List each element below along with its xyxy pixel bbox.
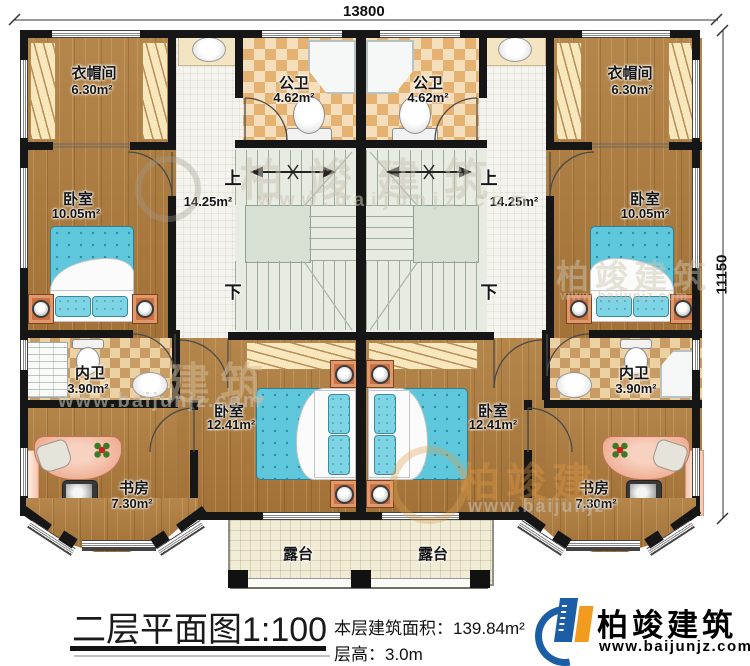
terrace-post [351, 570, 371, 588]
wall [669, 142, 702, 150]
wall [190, 400, 198, 410]
room-area-cloakroom-left: 6.30m² [71, 82, 112, 97]
title-underline-shadow [74, 655, 330, 657]
pillow [92, 296, 128, 317]
room-label-cloakroom-right: 衣帽间 [607, 62, 652, 83]
terrace-door [382, 512, 459, 520]
lamp-icon [335, 485, 354, 504]
wall [168, 196, 176, 338]
shower-icon [24, 342, 68, 398]
staircase-right [366, 148, 487, 332]
window [82, 540, 156, 551]
stair-flight-down [235, 261, 356, 330]
sink-icon [498, 37, 532, 62]
floor-area-line: 本层建筑面积：139.84m² [334, 614, 525, 639]
window [52, 30, 140, 38]
floor-height-value: 3.0m [385, 645, 423, 664]
stair-flight-up [235, 150, 356, 205]
floor-area-label: 本层建筑面积： [334, 619, 453, 638]
window [380, 30, 460, 38]
window [20, 448, 28, 496]
room-area-bedroom-large-left: 12.41m² [207, 417, 255, 432]
plant-icon [92, 440, 112, 460]
stair-landing [413, 205, 479, 263]
nightstand [132, 294, 158, 324]
wall [20, 330, 133, 338]
room-label-ensuite-right: 内卫 [619, 362, 649, 383]
window [566, 540, 640, 551]
lamp-icon [570, 300, 588, 318]
stairs-up-right: 上 [481, 164, 498, 189]
wall [130, 142, 176, 150]
brand-logo [535, 596, 593, 660]
pillow [374, 394, 396, 434]
room-area-ensuite-right: 3.90m² [615, 381, 656, 396]
window [582, 30, 670, 38]
pillow [328, 394, 350, 434]
lamp-icon [32, 300, 50, 318]
window [20, 340, 28, 370]
wall [542, 332, 546, 340]
stairs-down-left: 下 [225, 278, 242, 303]
wall [228, 332, 235, 340]
pillow [596, 296, 632, 317]
staircase-left [235, 148, 356, 332]
closet [556, 42, 582, 140]
room-label-cloakroom-left: 衣帽间 [71, 62, 116, 83]
nightstand [366, 360, 394, 388]
terrace-post [228, 570, 248, 588]
room-label-terrace-left: 露台 [283, 543, 313, 564]
room-area-bedroom-small-left: 10.05m² [52, 206, 100, 221]
floor-height-label: 层高： [334, 645, 385, 664]
lamp-icon [335, 365, 354, 384]
sink-icon [556, 372, 592, 398]
wall [20, 142, 53, 150]
terrace-door [263, 512, 340, 520]
wall [358, 140, 487, 148]
pillow [374, 435, 396, 475]
plant-icon [610, 440, 630, 460]
plan-title-text: 二层平面图 [72, 611, 242, 649]
room-label-study-right: 书房 [579, 477, 609, 498]
window [692, 60, 700, 138]
floor-area-value: 139.84m² [453, 619, 525, 638]
stair-winders [366, 205, 413, 261]
wall [20, 400, 178, 408]
lamp-icon [371, 485, 390, 504]
wall [172, 338, 180, 400]
lamp-icon [674, 300, 692, 318]
room-label-study-left: 书房 [119, 477, 149, 498]
stairs-area-right: 14.25m² [490, 194, 538, 209]
stair-landing [245, 205, 311, 263]
room-area-bedroom-small-right: 10.05m² [621, 206, 669, 221]
terrace-post [470, 570, 490, 588]
wall [196, 512, 524, 520]
logo-building-windows [558, 605, 567, 635]
nightstand [28, 294, 54, 324]
room-area-study-left: 7.30m² [111, 496, 152, 511]
sink-icon [132, 372, 168, 398]
wall [544, 400, 702, 408]
wall [235, 38, 243, 98]
stairs-area-left: 14.25m² [184, 194, 232, 209]
title-underline [70, 646, 326, 651]
wall [479, 38, 487, 98]
wall [589, 330, 702, 338]
sink-icon [192, 37, 226, 62]
pillow [633, 296, 669, 317]
wall [546, 38, 554, 150]
floor-height-line: 层高：3.0m [334, 640, 423, 665]
room-area-cloakroom-right: 6.30m² [611, 82, 652, 97]
window [20, 60, 28, 138]
pillow [55, 296, 91, 317]
closet [668, 42, 694, 140]
window [692, 340, 700, 370]
nightstand [330, 360, 358, 388]
plan-title: 二层平面图1:100 [72, 602, 327, 651]
room-area-study-right: 7.30m² [575, 496, 616, 511]
nightstand [366, 480, 394, 508]
room-label-terrace-right: 露台 [418, 543, 448, 564]
stair-flight-down [366, 261, 487, 330]
dimension-height: 11150 [714, 245, 731, 305]
wall [176, 332, 180, 340]
wall [546, 142, 592, 150]
wall [235, 140, 364, 148]
lamp-icon [136, 300, 154, 318]
stair-flight-up [366, 150, 487, 205]
stairs-down-right: 下 [481, 278, 498, 303]
closet [142, 42, 168, 140]
wall [168, 38, 176, 150]
room-area-bedroom-large-right: 12.41m² [469, 417, 517, 432]
wall [524, 400, 532, 410]
room-label-ensuite-left: 内卫 [75, 362, 105, 383]
window [20, 168, 28, 268]
window [692, 168, 700, 268]
closet [30, 42, 56, 140]
window [692, 448, 700, 496]
plan-scale: 1:100 [242, 611, 327, 649]
window [262, 30, 342, 38]
room-area-public-bath-left: 4.62m² [273, 90, 314, 105]
stair-winders [309, 205, 356, 261]
wall [546, 196, 554, 338]
brand-website: www.baijunjz.com [599, 638, 750, 655]
wall [235, 332, 487, 340]
lamp-icon [371, 365, 390, 384]
room-area-public-bath-right: 4.62m² [407, 90, 448, 105]
nightstand [566, 294, 592, 324]
wall-party [356, 38, 366, 512]
wall [487, 332, 494, 340]
wall [542, 338, 550, 400]
floor-plan-page: 13800 11150 衣帽间 6.30m² 衣帽间 6.30m² 卧室 10.… [0, 0, 750, 666]
dimension-width: 13800 [343, 3, 385, 20]
pillow [328, 435, 350, 475]
nightstand [330, 480, 358, 508]
stairs-up-left: 上 [225, 164, 242, 189]
room-area-ensuite-left: 3.90m² [67, 381, 108, 396]
